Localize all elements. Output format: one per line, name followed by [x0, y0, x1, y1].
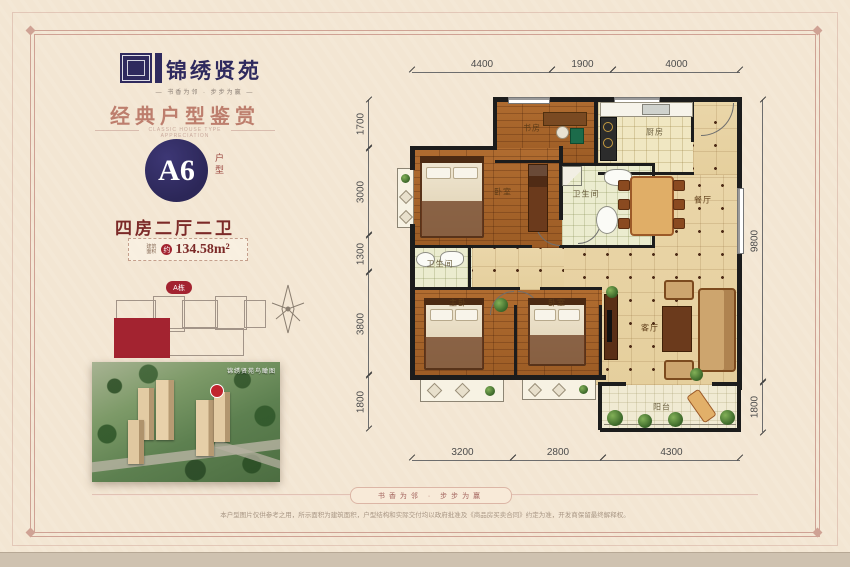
dining-chair [618, 199, 630, 210]
label-balcony: 阳台 [653, 402, 671, 413]
frame-corner-ornament [813, 26, 823, 36]
aerial-caption: 锦绣贤苑鸟瞰图 [227, 366, 276, 375]
dining-chair [673, 218, 685, 229]
dim-left-4: 3800 [368, 272, 369, 375]
wall [410, 375, 606, 380]
wardrobe [528, 164, 548, 232]
dim-top-1: 4400 [412, 72, 552, 73]
unit-code-circle: A6 [145, 139, 208, 202]
wall [493, 97, 497, 150]
coffee-table [662, 306, 692, 352]
wall [410, 146, 497, 150]
dining-chair [673, 180, 685, 191]
wall [410, 245, 415, 380]
bed [420, 156, 484, 238]
brand-name: 锦绣贤苑 [166, 55, 262, 85]
dim-right-1: 9800 [762, 100, 763, 382]
wall [600, 428, 741, 432]
wall [598, 382, 626, 386]
label-dining: 餐厅 [694, 195, 712, 206]
highlighted-unit-block [114, 318, 170, 358]
area-approx-circle: 约 [161, 244, 172, 255]
page-title: 经典户型鉴赏 [75, 100, 295, 129]
balcony-plant [668, 412, 683, 427]
stove-burner [603, 138, 613, 148]
wall [495, 160, 563, 163]
balcony-plant [720, 410, 735, 425]
dim-left-3: 1300 [368, 235, 369, 272]
sofa [698, 288, 736, 372]
bottom-strip [0, 552, 850, 567]
brand-tagline: — 书香为邻 · 步步为赢 — [120, 87, 290, 96]
window [508, 97, 550, 104]
frame-corner-ornament [26, 528, 36, 538]
bay-window-master [420, 379, 504, 402]
wall [410, 287, 520, 290]
bed [424, 298, 484, 370]
wall [468, 245, 471, 290]
aerial-building-badge [210, 384, 224, 398]
wall [540, 287, 602, 290]
dining-chair [618, 218, 630, 229]
brand-seal-strip [155, 53, 162, 83]
dining-chair [618, 180, 630, 191]
dining-chair [673, 199, 685, 210]
balcony-plant [638, 414, 652, 428]
bay-window-bedroom2 [522, 379, 596, 400]
bay-window-left [397, 168, 414, 228]
room-corridor [472, 248, 564, 290]
dim-left-1: 1700 [368, 100, 369, 148]
kitchen-sink [642, 104, 670, 115]
dining-table [630, 176, 674, 236]
wall [712, 382, 741, 386]
wall [737, 390, 741, 432]
footer-disclaimer: 本户型图片仅供参考之用，所示面积为建筑面积，户型结构和实际交付均以政府批准及《商… [125, 509, 725, 519]
label-study: 书房 [523, 123, 541, 134]
window [737, 188, 744, 254]
footer-ribbon: 书香为邻 · 步步为赢 [350, 487, 512, 504]
wall [514, 305, 517, 378]
wall [598, 385, 602, 430]
label-bedroom-top: 卧室 [494, 187, 512, 198]
frame-corner-ornament [26, 26, 36, 36]
desk [543, 112, 587, 126]
area-label: 建筑面积 [146, 245, 158, 255]
dim-right-2: 1800 [762, 382, 763, 432]
dim-bottom-1: 3200 [412, 460, 513, 461]
label-living: 客厅 [641, 323, 659, 334]
title-rule-right [231, 130, 275, 131]
label-bedroom2: 卧室 [548, 298, 566, 309]
wall [412, 245, 532, 248]
unit-code-label: 户型 [213, 153, 226, 177]
brand-seal-logo [120, 53, 152, 83]
compass-icon [268, 283, 308, 340]
plant [690, 368, 703, 381]
wall [559, 245, 655, 248]
dim-left-5: 1800 [368, 375, 369, 428]
plant [606, 286, 618, 298]
frame-corner-ornament [813, 528, 823, 538]
desk-chair [556, 126, 569, 139]
wall [410, 148, 415, 170]
stove-burner [603, 122, 613, 132]
wall [599, 305, 602, 378]
plant [494, 298, 508, 312]
dim-bottom-3: 4300 [603, 460, 740, 461]
dim-left-2: 3000 [368, 148, 369, 235]
unit-code: A6 [158, 154, 195, 188]
label-kitchen: 厨房 [646, 127, 664, 138]
building-badge: A栋 [166, 281, 192, 294]
corner-shower [562, 166, 582, 186]
study-plant-box [570, 128, 584, 144]
label-bath2: 卫生间 [427, 259, 454, 270]
unit-rooms-text: 四房二厅二卫 [85, 214, 265, 239]
tv [607, 310, 612, 342]
dim-top-2: 1900 [552, 72, 613, 73]
title-rule-left [95, 130, 139, 131]
dim-bottom-2: 2800 [513, 460, 603, 461]
balcony-plant [607, 410, 623, 426]
aerial-view-image: 锦绣贤苑鸟瞰图 [92, 362, 280, 482]
bathroom-sink [596, 206, 618, 234]
label-master: 主卧 [449, 298, 467, 309]
wall [594, 100, 598, 163]
floorplan-flyer: 锦绣贤苑 — 书香为邻 · 步步为赢 — 经典户型鉴赏 CLASSIC HOUS… [0, 0, 850, 567]
dim-top-3: 4000 [613, 72, 740, 73]
label-bath1: 卫生间 [573, 189, 600, 200]
page-subtitle: CLASSIC HOUSE TYPE APPRECIATION [144, 127, 226, 139]
area-box: 建筑面积 约 134.58m² [128, 238, 248, 261]
area-value: 134.58m² [175, 242, 229, 258]
armchair [664, 280, 694, 300]
